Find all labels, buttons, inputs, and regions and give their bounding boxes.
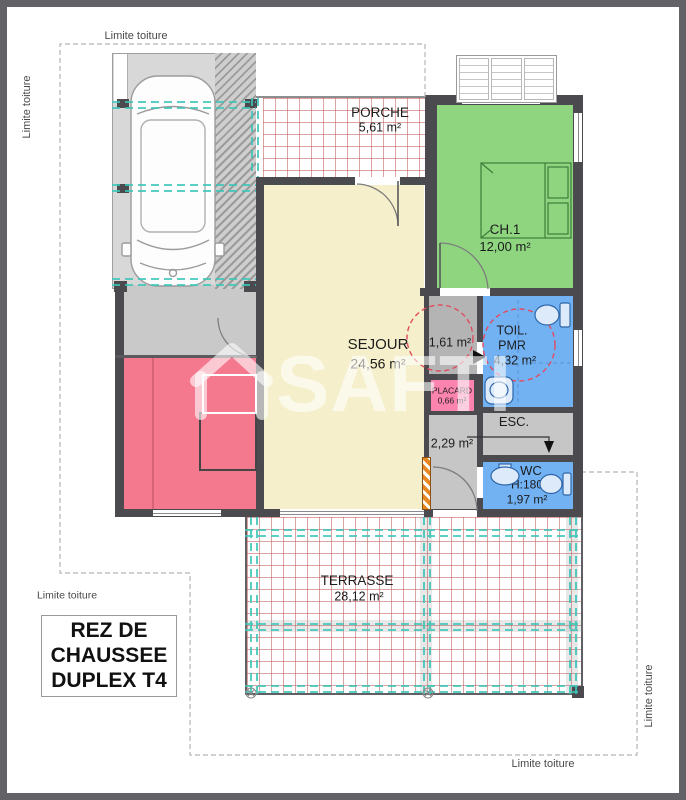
label-ch1-name: CH.1 xyxy=(490,223,521,237)
carport-post xyxy=(244,281,257,292)
carport-post xyxy=(117,99,129,108)
label-carport-name: Abri xyxy=(163,120,186,134)
carport-post xyxy=(245,99,257,108)
sejour-sliding-door xyxy=(280,509,424,517)
floor-plan-canvas: Abri Voiture Couvert 18,25 m² PORCHE 5,6… xyxy=(0,0,686,800)
wall-house-west xyxy=(115,285,124,517)
shutter-slat xyxy=(524,58,554,100)
room-fill-degagement xyxy=(429,415,477,509)
room-fill-ch1 xyxy=(437,105,573,288)
shutter-slat xyxy=(459,58,489,100)
label-terrasse-area: 28,12 m² xyxy=(334,590,383,603)
hall-terrasse-door-gap xyxy=(433,510,477,517)
room-fill-hall-entry xyxy=(115,285,256,358)
ch1-door-gap xyxy=(440,288,490,296)
wall-sejour-west xyxy=(256,177,264,517)
terrasse-beam-band xyxy=(566,517,578,695)
label-wc-height: H:180 xyxy=(511,479,543,492)
wc-door-gap xyxy=(477,467,483,498)
ch1-east-window xyxy=(574,113,582,162)
title-line-2: CHAUSSEE xyxy=(42,644,176,669)
limite-toiture-label-left: Limite toiture xyxy=(22,76,34,139)
terrasse-beam-band xyxy=(420,517,432,695)
carport-post xyxy=(114,281,127,292)
wall-ch1-west xyxy=(425,95,437,296)
label-pmr-name: TOIL. xyxy=(496,324,527,337)
label-porche-area: 5,61 m² xyxy=(359,121,401,134)
label-sejour-area: 24,56 m² xyxy=(350,357,405,372)
label-placard-area: 0,66 m² xyxy=(438,397,467,406)
carport-white-strip xyxy=(114,54,128,103)
label-pmr-name: PMR xyxy=(498,339,526,352)
label-cuisine-name: TERRASSE xyxy=(321,574,394,588)
carport-post xyxy=(117,184,129,193)
duct-hatch-strip xyxy=(422,457,431,510)
label-esc-name: ESC. xyxy=(499,415,529,429)
carport-roof-hatch xyxy=(215,53,256,289)
limite-toiture-label-bottom-left: Limite toiture xyxy=(37,590,97,601)
label-wc-area: 1,97 m² xyxy=(507,494,548,507)
cuisine-south-window xyxy=(153,510,221,516)
wall-esc-wc xyxy=(483,455,573,462)
wall-pmr-esc xyxy=(483,407,573,413)
room-fill-terrasse xyxy=(245,517,583,695)
label-wc-name: WC xyxy=(520,464,542,478)
label-hall161-area: 1,61 m² xyxy=(429,336,471,349)
title-line-3: DUPLEX T4 xyxy=(42,669,176,694)
wall-sejour-north xyxy=(256,177,437,185)
title-block: REZ DE CHAUSSEE DUPLEX T4 xyxy=(41,615,177,697)
limite-toiture-label-right: Limite toiture xyxy=(644,665,656,728)
label-sejour-name: SEJOUR xyxy=(348,337,409,353)
ch1-shutter-box xyxy=(456,55,557,103)
label-carport-name: Couvert xyxy=(153,151,199,165)
terrasse-beam-band xyxy=(245,620,583,632)
terrasse-post xyxy=(572,686,584,698)
label-ch1-area: 12,00 m² xyxy=(479,240,530,254)
porche-edge-line xyxy=(256,96,425,98)
pmr-east-window xyxy=(574,330,582,366)
label-pmr-area: 4,32 m² xyxy=(494,354,536,367)
wall-cuisine-north xyxy=(115,355,256,358)
room-fill-toil-pmr xyxy=(483,296,573,407)
room-fill-cuisine xyxy=(124,358,256,509)
shutter-slat xyxy=(491,58,521,100)
label-porche-name: PORCHE xyxy=(351,106,409,120)
limite-toiture-label-bottom: Limite toiture xyxy=(512,759,575,771)
limite-toiture-label-top: Limite toiture xyxy=(105,31,168,43)
entry-door-gap xyxy=(355,177,400,185)
label-degagement-area: 2,29 m² xyxy=(431,437,473,450)
title-line-1: REZ DE xyxy=(42,619,176,644)
pmr-door-gap xyxy=(477,342,483,374)
label-carport-name: Voiture xyxy=(155,136,195,150)
label-carport-area: 18,25 m² xyxy=(153,165,196,177)
label-placard-name: PLACARD xyxy=(432,387,472,396)
